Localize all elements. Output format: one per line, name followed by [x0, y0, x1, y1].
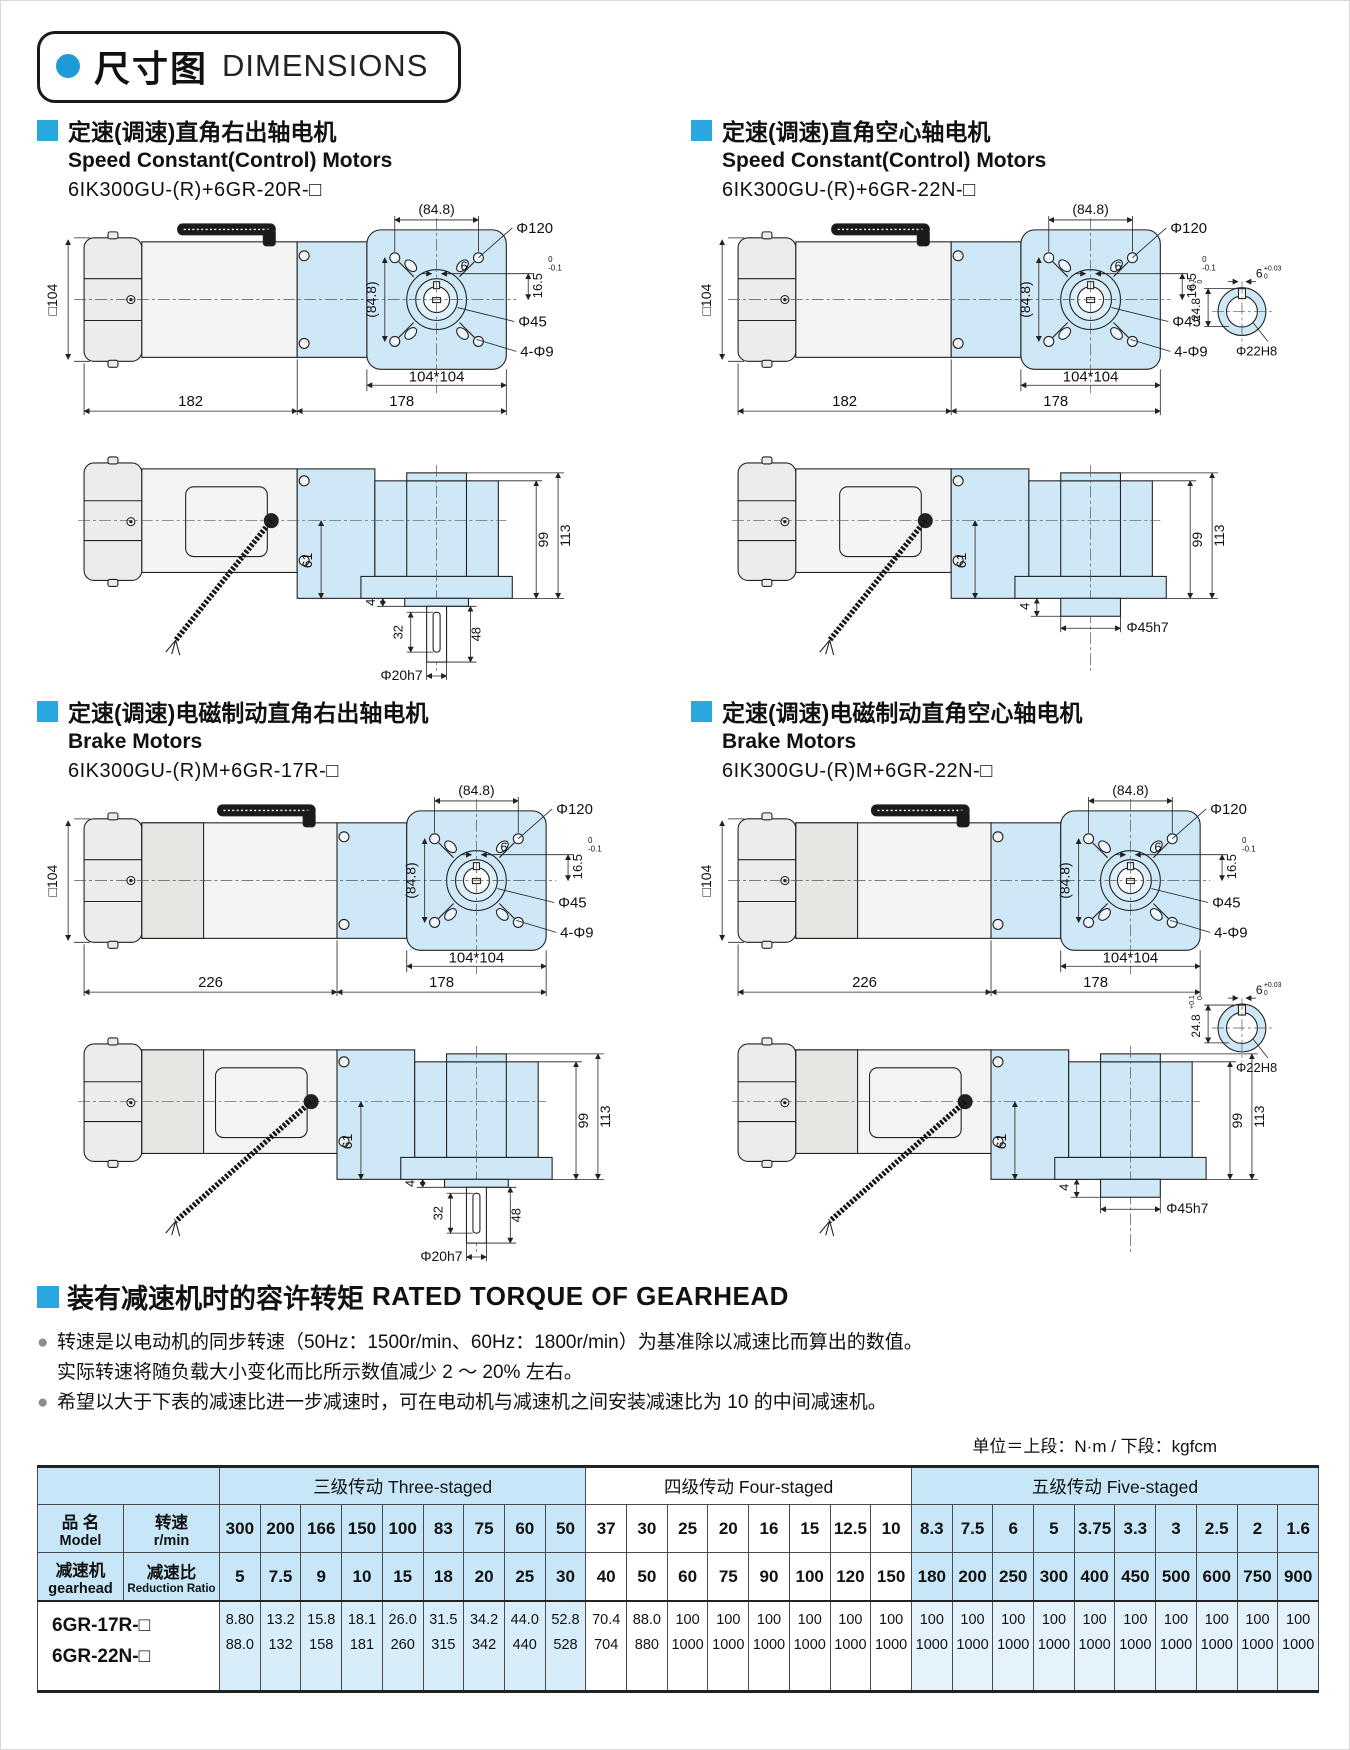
- ratio-cell: 600: [1196, 1553, 1237, 1602]
- speed-cell: 150: [342, 1505, 383, 1553]
- section-brake-right-angle-shaft-motor: 定速(调速)电磁制动直角右出轴电机 Brake Motors 6IK300GU-…: [37, 694, 665, 1261]
- cell-text: 1000: [790, 1633, 830, 1658]
- cell-text: 315: [424, 1633, 464, 1658]
- cell-text: 100: [831, 1608, 871, 1633]
- dim-label: 182: [832, 393, 857, 410]
- dim-label: Φ120: [556, 801, 593, 818]
- cell-text: 52.8: [546, 1608, 586, 1633]
- cell-text: 15.8: [301, 1608, 341, 1633]
- hollow-output-hub: [1061, 598, 1121, 616]
- speed-cell: 6: [993, 1505, 1034, 1553]
- dim-label: Φ20h7: [420, 1248, 462, 1261]
- ratio-cell: 18: [423, 1553, 464, 1602]
- dim-label: (84.8): [1112, 783, 1148, 798]
- speed-cell: 100: [382, 1505, 423, 1553]
- ratio-cell: 10: [342, 1553, 383, 1602]
- ratio-cell: 25: [504, 1553, 545, 1602]
- cell-text: 100: [993, 1608, 1033, 1633]
- note-text: 转速是以电动机的同步转速（50Hz：1500r/min、60Hz：1800r/m…: [57, 1328, 923, 1358]
- cell-text: 88.0: [627, 1608, 667, 1633]
- cell-text: 16: [749, 1519, 789, 1539]
- drawing-s2: □1046(84.8)Φ12016.50-0.1(84.8)Φ454-Φ9104…: [691, 202, 1301, 680]
- cell-text: 704: [586, 1633, 626, 1658]
- dim-label: 104*104: [409, 368, 465, 385]
- dim-label: Φ120: [516, 220, 553, 237]
- dimensions-title-en: DIMENSIONS: [222, 48, 428, 84]
- dim-label: 0: [588, 836, 593, 845]
- cell-text: 60: [668, 1567, 708, 1587]
- group-header: 三级传动 Three-staged: [220, 1467, 586, 1505]
- speed-cell: 12.5: [830, 1505, 871, 1553]
- cell-text: 100: [871, 1608, 911, 1633]
- speed-cell: 3: [1156, 1505, 1197, 1553]
- cell-text: 60: [505, 1519, 545, 1539]
- dim-label: 6: [500, 840, 507, 855]
- cell-text: Model: [38, 1533, 123, 1549]
- torque-table: 三级传动 Three-staged四级传动 Four-staged五级传动 Fi…: [37, 1465, 1319, 1693]
- cell-text: 2.5: [1197, 1519, 1237, 1539]
- dimension-drawing: □1046(84.8)Φ12016.50-0.1(84.8)Φ454-Φ9104…: [37, 202, 665, 680]
- bullet-dot-icon: [56, 54, 80, 78]
- cell-text: r/min: [124, 1533, 219, 1549]
- dim-label: +0.1: [1189, 995, 1196, 1009]
- dim-label: 113: [1251, 1105, 1267, 1127]
- note-bullet-icon: ●: [37, 1328, 57, 1358]
- torque-value-cell: 1001000: [993, 1601, 1034, 1692]
- dim-label: 16.5: [1224, 854, 1239, 879]
- drawing-sections: 定速(调速)直角右出轴电机 Speed Constant(Control) Mo…: [37, 113, 1319, 1261]
- speed-cell: 25: [667, 1505, 708, 1553]
- cell-text: 1000: [953, 1633, 993, 1658]
- torque-value-cell: 1001000: [1278, 1601, 1319, 1692]
- dim-label: 226: [198, 974, 223, 991]
- torque-value-cell: 1001000: [708, 1601, 749, 1692]
- dim-label: Φ22H8: [1236, 343, 1277, 358]
- cell-text: 1000: [708, 1633, 748, 1658]
- dim-label: 113: [597, 1105, 613, 1127]
- cell-text: 300: [1034, 1567, 1074, 1587]
- cell-text: 9: [301, 1567, 341, 1587]
- dim-label: 113: [557, 524, 573, 546]
- dim-label: (84.8): [1017, 281, 1033, 317]
- dim-label: 61: [993, 1134, 1009, 1150]
- cell-text: 44.0: [505, 1608, 545, 1633]
- cell-text: 6GR-22N-□: [52, 1641, 219, 1672]
- speed-cell: 3.75: [1074, 1505, 1115, 1553]
- dim-label: 0: [1197, 996, 1204, 1000]
- torque-value-cell: 8.8088.0: [220, 1601, 261, 1692]
- ratio-label-cell: 减速比Reduction Ratio: [124, 1553, 220, 1602]
- torque-value-cell: 1001000: [1115, 1601, 1156, 1692]
- section-title-en: Brake Motors: [37, 730, 665, 754]
- unit-note: 单位＝上段：N·m / 下段：kgfcm: [1, 1432, 1349, 1457]
- speed-cell: 3.3: [1115, 1505, 1156, 1553]
- dim-label: 6: [1256, 267, 1263, 281]
- speed-cell: 10: [871, 1505, 912, 1553]
- speed-cell: 30: [627, 1505, 668, 1553]
- dim-label: 99: [1189, 532, 1205, 548]
- cell-text: 1000: [1075, 1633, 1115, 1658]
- dim-label: 99: [1229, 1113, 1245, 1129]
- dim-label: Φ45: [1212, 894, 1241, 911]
- speed-cell: 83: [423, 1505, 464, 1553]
- dim-label: 178: [389, 393, 414, 410]
- drawing-s1: □1046(84.8)Φ12016.50-0.1(84.8)Φ454-Φ9104…: [37, 202, 647, 680]
- cell-text: 100: [708, 1608, 748, 1633]
- torque-value-cell: 52.8528: [545, 1601, 586, 1692]
- cell-text: 31.5: [424, 1608, 464, 1633]
- speed-cell: 37: [586, 1505, 627, 1553]
- torque-value-cell: 18.1181: [342, 1601, 383, 1692]
- cell-text: 1000: [993, 1633, 1033, 1658]
- drawing-s3: □1046(84.8)Φ12016.50-0.1(84.8)Φ454-Φ9104…: [37, 783, 647, 1261]
- cell-text: 166: [301, 1519, 341, 1539]
- cell-text: 2: [1238, 1519, 1278, 1539]
- section-title-zh: 定速(调速)电磁制动直角右出轴电机: [68, 694, 428, 728]
- speed-cell: 200: [260, 1505, 301, 1553]
- cell-text: 25: [505, 1567, 545, 1587]
- cell-text: 100: [1278, 1608, 1318, 1633]
- torque-value-cell: 1001000: [1196, 1601, 1237, 1692]
- speed-cell: 300: [220, 1505, 261, 1553]
- cell-text: 12.5: [831, 1519, 871, 1539]
- speed-cell: 60: [504, 1505, 545, 1553]
- ratio-cell: 9: [301, 1553, 342, 1602]
- cell-text: 三级传动 Three-staged: [220, 1474, 585, 1499]
- cell-text: 100: [1034, 1608, 1074, 1633]
- dim-label: 48: [468, 627, 483, 641]
- dim-label: Φ45h7: [1126, 619, 1168, 635]
- dim-label: 4-Φ9: [1174, 343, 1207, 360]
- speed-cell: 15: [789, 1505, 830, 1553]
- dim-label: Φ20h7: [381, 667, 423, 680]
- cell-text: 70.4: [586, 1608, 626, 1633]
- cell-text: 150: [342, 1519, 382, 1539]
- dim-label: Φ22H8: [1236, 1060, 1277, 1075]
- cell-text: 四级传动 Four-staged: [586, 1474, 911, 1499]
- dim-label: 99: [535, 532, 551, 548]
- ratio-cell: 900: [1278, 1553, 1319, 1602]
- dim-label: 4: [403, 1180, 418, 1187]
- dim-label: (84.8): [458, 783, 494, 798]
- ratio-cell: 40: [586, 1553, 627, 1602]
- dim-label: 6: [1115, 259, 1122, 274]
- dim-label: 6: [461, 259, 468, 274]
- ratio-cell: 180: [911, 1553, 952, 1602]
- torque-value-cell: 13.2132: [260, 1601, 301, 1692]
- group-header: 五级传动 Five-staged: [911, 1467, 1318, 1505]
- dimensions-title-zh: 尺寸图: [94, 40, 208, 92]
- model-number: 6IK300GU-(R)M+6GR-22N-□: [691, 760, 1319, 783]
- dim-label: 32: [391, 625, 406, 639]
- torque-value-cell: 26.0260: [382, 1601, 423, 1692]
- cell-text: 100: [790, 1567, 830, 1587]
- model-number: 6IK300GU-(R)+6GR-22N-□: [691, 179, 1319, 202]
- speed-cell: 1.6: [1278, 1505, 1319, 1553]
- hollow-output-hub: [1101, 1179, 1161, 1197]
- speed-cell: 50: [545, 1505, 586, 1553]
- dim-label: 24.8: [1189, 1014, 1203, 1038]
- dim-label: 0: [548, 255, 553, 264]
- cell-text: 40: [586, 1567, 626, 1587]
- cell-text: 7.5: [953, 1519, 993, 1539]
- dim-label: (84.8): [363, 281, 379, 317]
- corner-cell: [38, 1467, 220, 1505]
- cell-text: 1000: [1278, 1633, 1318, 1658]
- group-header: 四级传动 Four-staged: [586, 1467, 912, 1505]
- speed-cell: 166: [301, 1505, 342, 1553]
- dim-label: Φ45h7: [1166, 1200, 1208, 1216]
- ratio-cell: 400: [1074, 1553, 1115, 1602]
- cell-text: 100: [1075, 1608, 1115, 1633]
- ratio-cell: 750: [1237, 1553, 1278, 1602]
- dimensions-header: 尺寸图 DIMENSIONS: [37, 31, 461, 103]
- dim-label: □104: [44, 865, 60, 897]
- cell-text: 120: [831, 1567, 871, 1587]
- dim-label: (84.8): [1057, 862, 1073, 898]
- ratio-cell: 50: [627, 1553, 668, 1602]
- section-title-zh: 定速(调速)电磁制动直角空心轴电机: [722, 694, 1082, 728]
- model-number: 6IK300GU-(R)M+6GR-17R-□: [37, 760, 665, 783]
- dim-label: Φ45: [558, 894, 587, 911]
- ratio-cell: 20: [464, 1553, 505, 1602]
- cell-text: 100: [953, 1608, 993, 1633]
- ratio-cell: 5: [220, 1553, 261, 1602]
- dim-label: □104: [44, 284, 60, 316]
- ratio-cell: 90: [749, 1553, 790, 1602]
- section-marker-icon: [37, 1286, 59, 1308]
- dim-label: +0.03: [1264, 266, 1282, 273]
- cell-text: 600: [1197, 1567, 1237, 1587]
- cell-text: 300: [220, 1519, 260, 1539]
- gearhead-label-cell: 减速机gearhead: [38, 1553, 124, 1602]
- dim-label: 16.5: [530, 273, 545, 298]
- speed-cell: 20: [708, 1505, 749, 1553]
- section-title-en: Brake Motors: [691, 730, 1319, 754]
- torque-value-cell: 1001000: [952, 1601, 993, 1692]
- drawing-s4: □1046(84.8)Φ12016.50-0.1(84.8)Φ454-Φ9104…: [691, 783, 1301, 1261]
- speed-label-cell: 转速r/min: [124, 1505, 220, 1553]
- cell-text: 8.3: [912, 1519, 952, 1539]
- torque-value-cell: 34.2342: [464, 1601, 505, 1692]
- cell-text: 1000: [1034, 1633, 1074, 1658]
- dim-label: (84.8): [1072, 202, 1108, 217]
- dim-label: 4: [1057, 1184, 1072, 1191]
- cell-text: 品 名: [38, 1509, 123, 1533]
- cell-text: 100: [1156, 1608, 1196, 1633]
- ratio-cell: 250: [993, 1553, 1034, 1602]
- speed-cell: 5: [1034, 1505, 1075, 1553]
- ratio-cell: 300: [1034, 1553, 1075, 1602]
- cell-text: 880: [627, 1633, 667, 1658]
- dim-label: □104: [698, 284, 714, 316]
- torque-value-cell: 1001000: [667, 1601, 708, 1692]
- cell-text: 5: [1034, 1519, 1074, 1539]
- note-text: 实际转速将随负载大小变化而比所示数值减少 2 ～ 20% 左右。: [57, 1358, 583, 1388]
- cell-text: 1.6: [1278, 1519, 1318, 1539]
- cell-text: 减速比: [124, 1559, 219, 1583]
- cell-text: 10: [871, 1519, 911, 1539]
- cell-text: 1000: [871, 1633, 911, 1658]
- dim-label: -0.1: [1202, 264, 1216, 273]
- dim-label: 6: [1154, 840, 1161, 855]
- dim-label: 4-Φ9: [1214, 924, 1247, 941]
- note-bullet-icon: [37, 1358, 57, 1388]
- dim-label: 4: [1017, 603, 1032, 610]
- cell-text: 20: [708, 1519, 748, 1539]
- cell-text: 180: [912, 1567, 952, 1587]
- output-shaft: [427, 606, 447, 662]
- cell-text: 100: [1238, 1608, 1278, 1633]
- cell-text: 200: [953, 1567, 993, 1587]
- speed-cell: 75: [464, 1505, 505, 1553]
- ratio-cell: 120: [830, 1553, 871, 1602]
- torque-value-cell: 1001000: [1156, 1601, 1197, 1692]
- dim-label: 182: [178, 393, 203, 410]
- dim-label: 104*104: [1063, 368, 1119, 385]
- cell-text: 减速机: [38, 1557, 123, 1581]
- cell-text: 8.80: [220, 1608, 260, 1633]
- cell-text: 342: [464, 1633, 504, 1658]
- cell-text: 750: [1238, 1567, 1278, 1587]
- ratio-cell: 75: [708, 1553, 749, 1602]
- dim-label: 24.8: [1189, 298, 1203, 322]
- dim-label: 178: [429, 974, 454, 991]
- torque-value-cell: 44.0440: [504, 1601, 545, 1692]
- cell-text: 260: [383, 1633, 423, 1658]
- cell-text: 1000: [912, 1633, 952, 1658]
- torque-value-cell: 70.4704: [586, 1601, 627, 1692]
- speed-cell: 8.3: [911, 1505, 952, 1553]
- cell-text: 100: [749, 1608, 789, 1633]
- dim-label: 0: [1202, 255, 1207, 264]
- section-brake-hollow-shaft-motor: 定速(调速)电磁制动直角空心轴电机 Brake Motors 6IK300GU-…: [691, 694, 1319, 1261]
- note-text: 希望以大于下表的减速比进一步减速时，可在电动机与减速机之间安装减速比为 10 的…: [57, 1388, 887, 1418]
- cell-text: 五级传动 Five-staged: [912, 1474, 1318, 1499]
- dim-label: 48: [508, 1208, 523, 1222]
- cell-text: 500: [1156, 1567, 1196, 1587]
- ratio-cell: 450: [1115, 1553, 1156, 1602]
- section-hollow-shaft-motor: 定速(调速)直角空心轴电机 Speed Constant(Control) Mo…: [691, 113, 1319, 680]
- cell-text: 10: [342, 1567, 382, 1587]
- cell-text: 7.5: [261, 1567, 301, 1587]
- cell-text: 250: [993, 1567, 1033, 1587]
- dim-label: 99: [575, 1113, 591, 1129]
- ratio-cell: 200: [952, 1553, 993, 1602]
- cell-text: 75: [708, 1567, 748, 1587]
- cell-text: 75: [464, 1519, 504, 1539]
- cell-text: 15: [790, 1519, 830, 1539]
- ratio-cell: 500: [1156, 1553, 1197, 1602]
- cell-text: 50: [546, 1519, 586, 1539]
- cell-text: 88.0: [220, 1633, 260, 1658]
- speed-cell: 7.5: [952, 1505, 993, 1553]
- model-label-cell: 品 名Model: [38, 1505, 124, 1553]
- section-title-en: Speed Constant(Control) Motors: [691, 149, 1319, 173]
- cell-text: 100: [790, 1608, 830, 1633]
- cell-text: 900: [1278, 1567, 1318, 1587]
- cell-text: 3.3: [1115, 1519, 1155, 1539]
- cell-text: 181: [342, 1633, 382, 1658]
- ratio-cell: 150: [871, 1553, 912, 1602]
- dim-label: 0: [1264, 990, 1268, 997]
- cell-text: 3.75: [1075, 1519, 1115, 1539]
- section-marker-icon: [691, 701, 712, 722]
- output-shaft: [466, 1187, 486, 1243]
- torque-value-cell: 1001000: [830, 1601, 871, 1692]
- torque-title-zh: 装有减速机时的容许转矩: [67, 1277, 364, 1316]
- dim-label: Φ45: [518, 313, 547, 330]
- section-title-en: Speed Constant(Control) Motors: [37, 149, 665, 173]
- dim-label: 4-Φ9: [560, 924, 593, 941]
- dim-label: 178: [1043, 393, 1068, 410]
- dim-label: -0.1: [1242, 845, 1256, 854]
- cell-text: 1000: [1156, 1633, 1196, 1658]
- cell-text: 50: [627, 1567, 667, 1587]
- dim-label: □104: [698, 865, 714, 897]
- torque-value-cell: 15.8158: [301, 1601, 342, 1692]
- section-title-zh: 定速(调速)直角空心轴电机: [722, 113, 990, 147]
- cell-text: 150: [871, 1567, 911, 1587]
- cell-text: 37: [586, 1519, 626, 1539]
- cell-text: 90: [749, 1567, 789, 1587]
- cell-text: 200: [261, 1519, 301, 1539]
- dim-label: 104*104: [449, 949, 505, 966]
- cell-text: 20: [464, 1567, 504, 1587]
- dim-label: +0.03: [1264, 982, 1282, 989]
- cell-text: 1000: [831, 1633, 871, 1658]
- cell-text: 528: [546, 1633, 586, 1658]
- cell-text: 18: [424, 1567, 464, 1587]
- section-marker-icon: [37, 701, 58, 722]
- dim-label: 178: [1083, 974, 1108, 991]
- dim-label: 0: [1197, 280, 1204, 284]
- cell-text: Reduction Ratio: [124, 1583, 219, 1595]
- cell-text: 100: [383, 1519, 423, 1539]
- torque-section-header: 装有减速机时的容许转矩 RATED TORQUE OF GEARHEAD: [37, 1277, 1313, 1316]
- cell-text: gearhead: [38, 1581, 123, 1597]
- cell-text: 440: [505, 1633, 545, 1658]
- dim-label: 61: [299, 553, 315, 569]
- note-bullet-icon: ●: [37, 1388, 57, 1418]
- cell-text: 18.1: [342, 1608, 382, 1633]
- dim-label: -0.1: [588, 845, 602, 854]
- dim-label: (84.8): [418, 202, 454, 217]
- cell-text: 158: [301, 1633, 341, 1658]
- cell-text: 450: [1115, 1567, 1155, 1587]
- cell-text: 1000: [1197, 1633, 1237, 1658]
- section-marker-icon: [691, 120, 712, 141]
- cell-text: 3: [1156, 1519, 1196, 1539]
- cell-text: 1000: [1238, 1633, 1278, 1658]
- dim-label: 104*104: [1103, 949, 1159, 966]
- torque-value-cell: 1001000: [1074, 1601, 1115, 1692]
- dim-label: 16.5: [570, 854, 585, 879]
- cell-text: 15: [383, 1567, 423, 1587]
- cell-text: 400: [1075, 1567, 1115, 1587]
- torque-table-container: 三级传动 Three-staged四级传动 Four-staged五级传动 Fi…: [1, 1465, 1349, 1693]
- speed-cell: 16: [749, 1505, 790, 1553]
- dimension-drawing: □1046(84.8)Φ12016.50-0.1(84.8)Φ454-Φ9104…: [691, 783, 1319, 1261]
- dim-label: 226: [852, 974, 877, 991]
- speed-cell: 2.5: [1196, 1505, 1237, 1553]
- cell-text: 13.2: [261, 1608, 301, 1633]
- torque-value-cell: 1001000: [911, 1601, 952, 1692]
- torque-value-cell: 31.5315: [423, 1601, 464, 1692]
- section-right-angle-shaft-motor: 定速(调速)直角右出轴电机 Speed Constant(Control) Mo…: [37, 113, 665, 680]
- cell-text: 132: [261, 1633, 301, 1658]
- cell-text: 6: [993, 1519, 1033, 1539]
